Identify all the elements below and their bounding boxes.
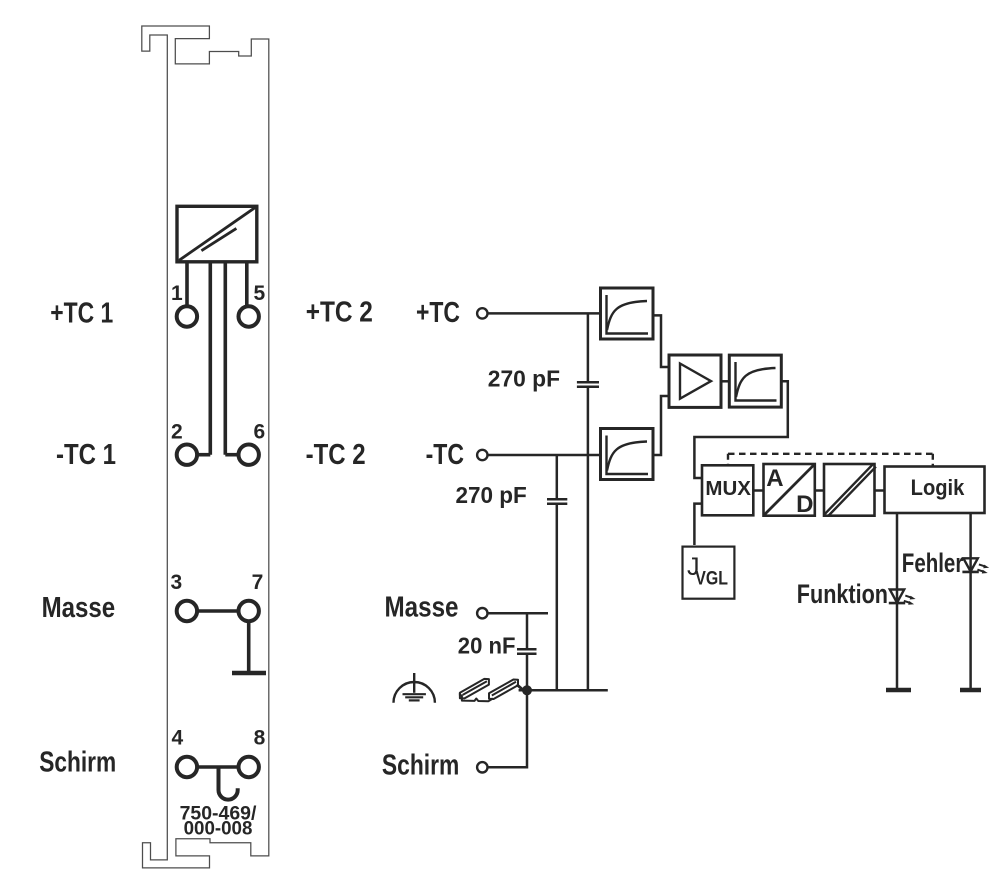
svg-text:Masse: Masse [42, 592, 116, 624]
svg-text:8: 8 [254, 726, 266, 749]
svg-text:D: D [796, 491, 813, 518]
svg-text:VGL: VGL [695, 568, 728, 589]
svg-text:2: 2 [171, 421, 183, 444]
svg-text:5: 5 [253, 282, 265, 305]
svg-text:Schirm: Schirm [39, 747, 116, 779]
svg-text:MUX: MUX [705, 478, 751, 500]
svg-text:-TC 1: -TC 1 [56, 439, 116, 471]
svg-text:+TC: +TC [416, 297, 460, 329]
svg-text:+TC 2: +TC 2 [306, 297, 373, 329]
svg-text:1: 1 [171, 282, 183, 305]
svg-text:20 nF: 20 nF [458, 633, 516, 659]
svg-text:270 pF: 270 pF [456, 482, 527, 508]
svg-text:6: 6 [253, 421, 265, 444]
svg-text:7: 7 [252, 571, 264, 594]
svg-text:4: 4 [171, 726, 183, 749]
svg-text:Masse: Masse [385, 592, 459, 624]
svg-text:270 pF: 270 pF [488, 366, 560, 392]
svg-text:Logik: Logik [911, 475, 965, 500]
svg-text:-TC 2: -TC 2 [306, 439, 366, 471]
svg-text:+TC 1: +TC 1 [50, 298, 113, 330]
svg-text:Funktion: Funktion [797, 579, 888, 609]
svg-text:000-008: 000-008 [184, 818, 253, 840]
svg-text:-TC: -TC [426, 439, 464, 471]
svg-text:Schirm: Schirm [382, 750, 459, 782]
svg-text:Fehler: Fehler [902, 548, 964, 578]
svg-text:3: 3 [170, 571, 182, 594]
svg-text:A: A [766, 465, 783, 492]
